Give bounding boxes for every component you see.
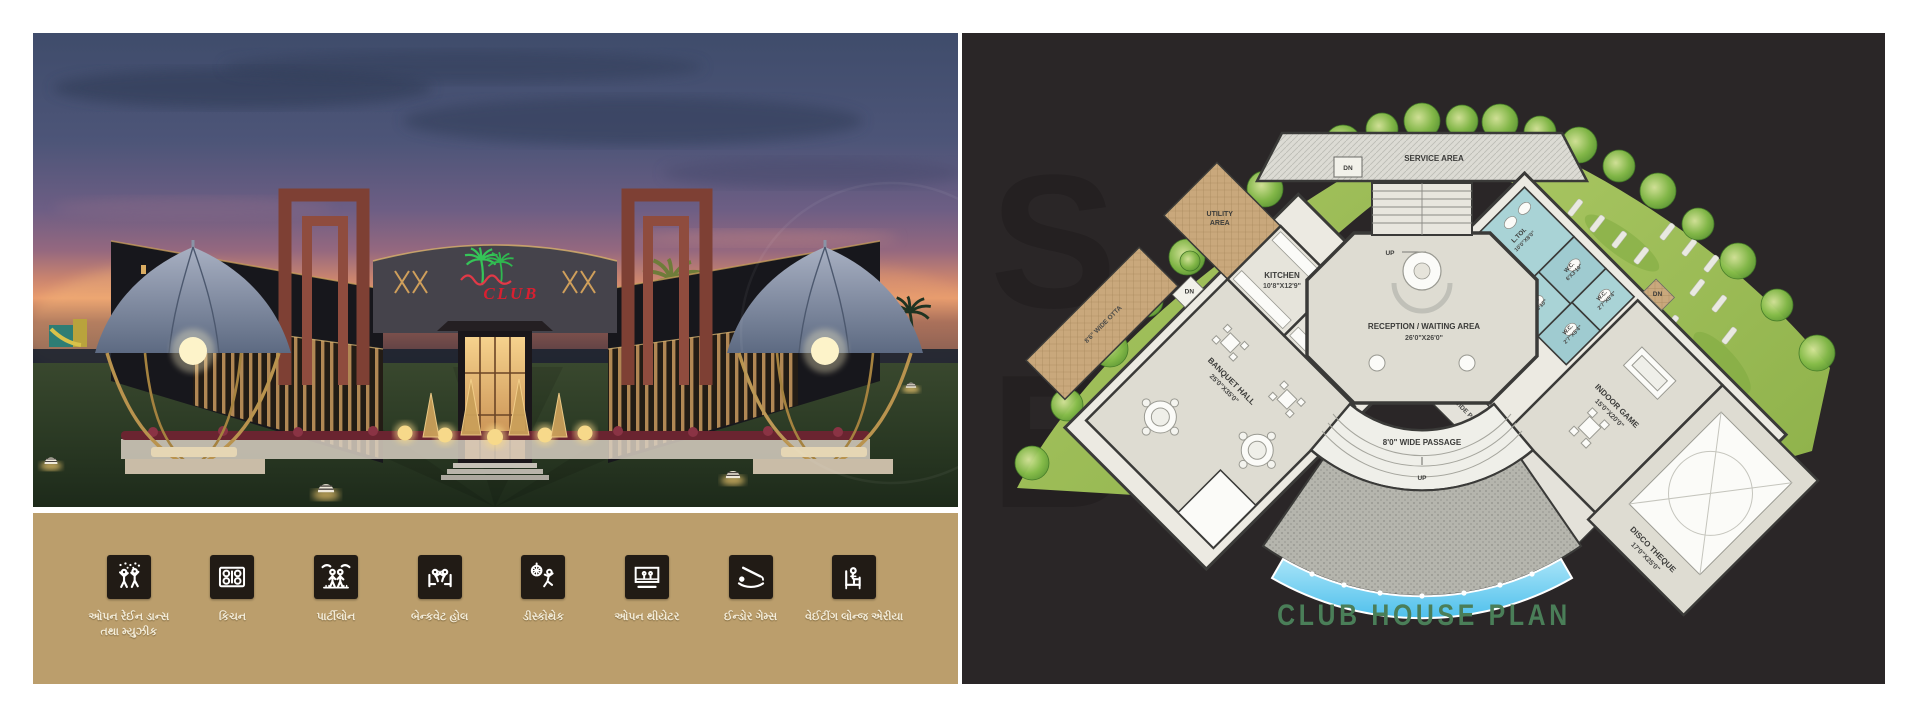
banquet-hall-icon	[418, 555, 462, 599]
amenity-discotheque: ડીસ્કોથેક	[492, 555, 596, 684]
kitchen-label: KITCHEN	[1264, 271, 1300, 280]
amenity-band: ઓપન રેઈન ડાન્સતથા મ્યુઝીક કિચન	[33, 513, 958, 684]
amenity-rain-dance: ઓપન રેઈન ડાન્સતથા મ્યુઝીક	[77, 555, 181, 684]
reception-label: RECEPTION / WAITING AREA	[1368, 322, 1480, 331]
left-panel: CLUB	[33, 33, 958, 684]
waiting-lounge-icon	[832, 555, 876, 599]
amenity-label: કિચન	[219, 610, 246, 625]
club-house-plan: SERVICE AREA DN	[962, 33, 1885, 684]
open-theater-icon	[625, 555, 669, 599]
amenity-label: ઓપન રેઈન ડાન્સતથા મ્યુઝીક	[88, 610, 169, 640]
amenity-kitchen: કિચન	[181, 555, 285, 684]
plan-title: CLUB HOUSE PLAN	[1277, 598, 1571, 632]
kitchen-size: 10'8"X12'9"	[1263, 283, 1301, 290]
dn-label-1: DN	[1343, 165, 1353, 172]
amenity-label: પાર્ટીલોન	[317, 610, 356, 625]
utility-label-2: AREA	[1210, 220, 1230, 227]
amenity-party-lawn: પાર્ટીલોન	[284, 555, 388, 684]
passage-80-label: 8'0" WIDE PASSAGE	[1383, 438, 1462, 447]
amenity-label: ડીસ્કોથેક	[523, 610, 564, 625]
amenity-label: વેઈટીંગ લોન્જ એરીયા	[805, 610, 903, 625]
amenity-waiting-lounge: વેઈટીંગ લોન્જ એરીયા	[802, 555, 906, 684]
amenity-label: ઈન્ડોર ગેમ્સ	[724, 610, 777, 625]
amenity-banquet-hall: બેન્કવેટ હોલ	[388, 555, 492, 684]
indoor-games-icon	[729, 555, 773, 599]
clubhouse-photo: CLUB	[33, 33, 958, 507]
sign-club-text: CLUB	[483, 284, 538, 303]
brochure-page: CLUB	[0, 0, 1920, 717]
dn-label-3: DN	[1653, 291, 1663, 298]
amenity-indoor-games: ઈન્ડોર ગેમ્સ	[699, 555, 803, 684]
party-lawn-icon	[314, 555, 358, 599]
amenity-open-theater: ઓપન થીયેટર	[595, 555, 699, 684]
amenity-label: ઓપન થીયેટર	[614, 610, 679, 625]
up-label-2: UP	[1417, 475, 1427, 482]
amenity-label: બેન્કવેટ હોલ	[411, 610, 468, 625]
utility-label-1: UTILITY	[1207, 211, 1234, 218]
service-area-top: SERVICE AREA DN	[1257, 133, 1587, 181]
dn-label-2: DN	[1185, 288, 1195, 295]
clubhouse-render: CLUB	[33, 33, 958, 507]
kitchen-icon	[210, 555, 254, 599]
reception-size: 26'0"X26'0"	[1405, 335, 1443, 342]
service-area-top-label: SERVICE AREA	[1404, 154, 1464, 163]
content-canvas: CLUB	[33, 33, 1885, 684]
rain-dance-icon	[107, 555, 151, 599]
right-panel: S BA	[962, 33, 1885, 684]
discotheque-icon	[521, 555, 565, 599]
up-label-1: UP	[1385, 250, 1395, 257]
